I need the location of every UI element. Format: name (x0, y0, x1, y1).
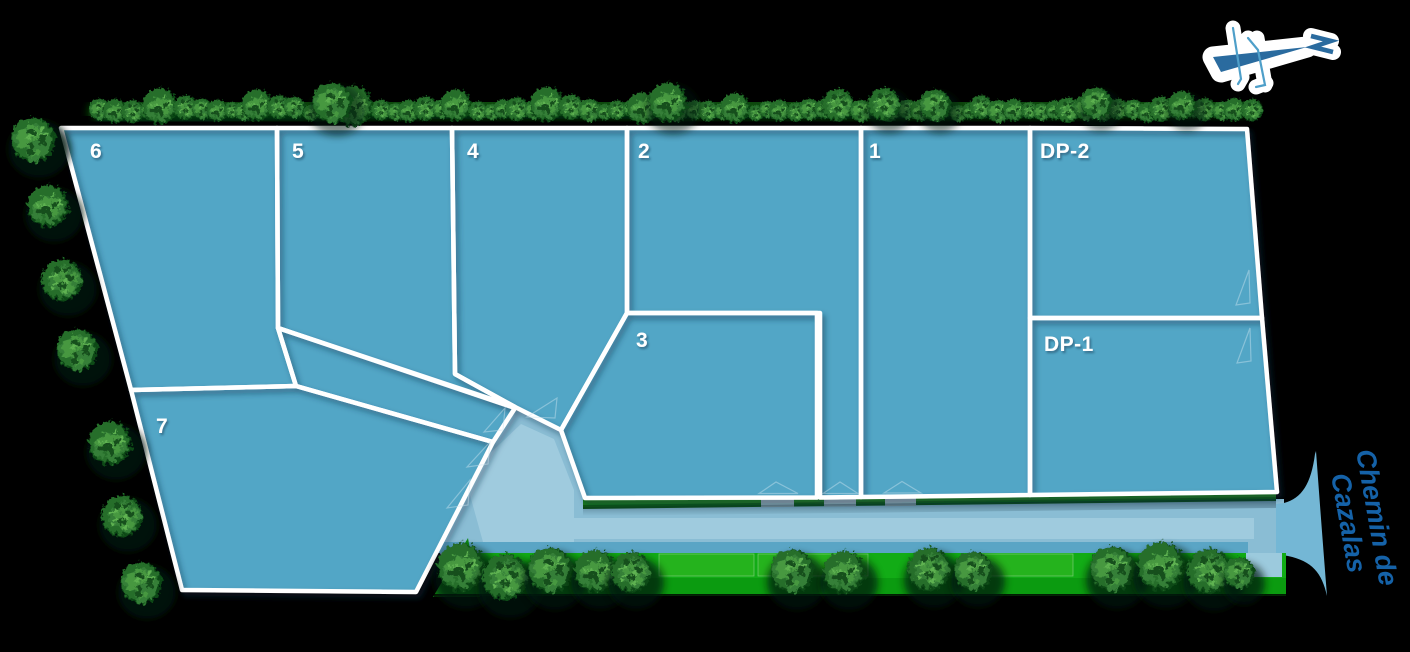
svg-text:3: 3 (636, 329, 648, 352)
svg-text:DP-2: DP-2 (1040, 140, 1090, 163)
svg-text:4: 4 (467, 140, 479, 163)
svg-text:6: 6 (90, 140, 102, 163)
svg-text:1: 1 (869, 140, 881, 163)
svg-text:DP-1: DP-1 (1044, 333, 1094, 356)
svg-text:7: 7 (156, 415, 168, 438)
svg-text:2: 2 (638, 140, 650, 163)
svg-text:5: 5 (292, 140, 304, 163)
